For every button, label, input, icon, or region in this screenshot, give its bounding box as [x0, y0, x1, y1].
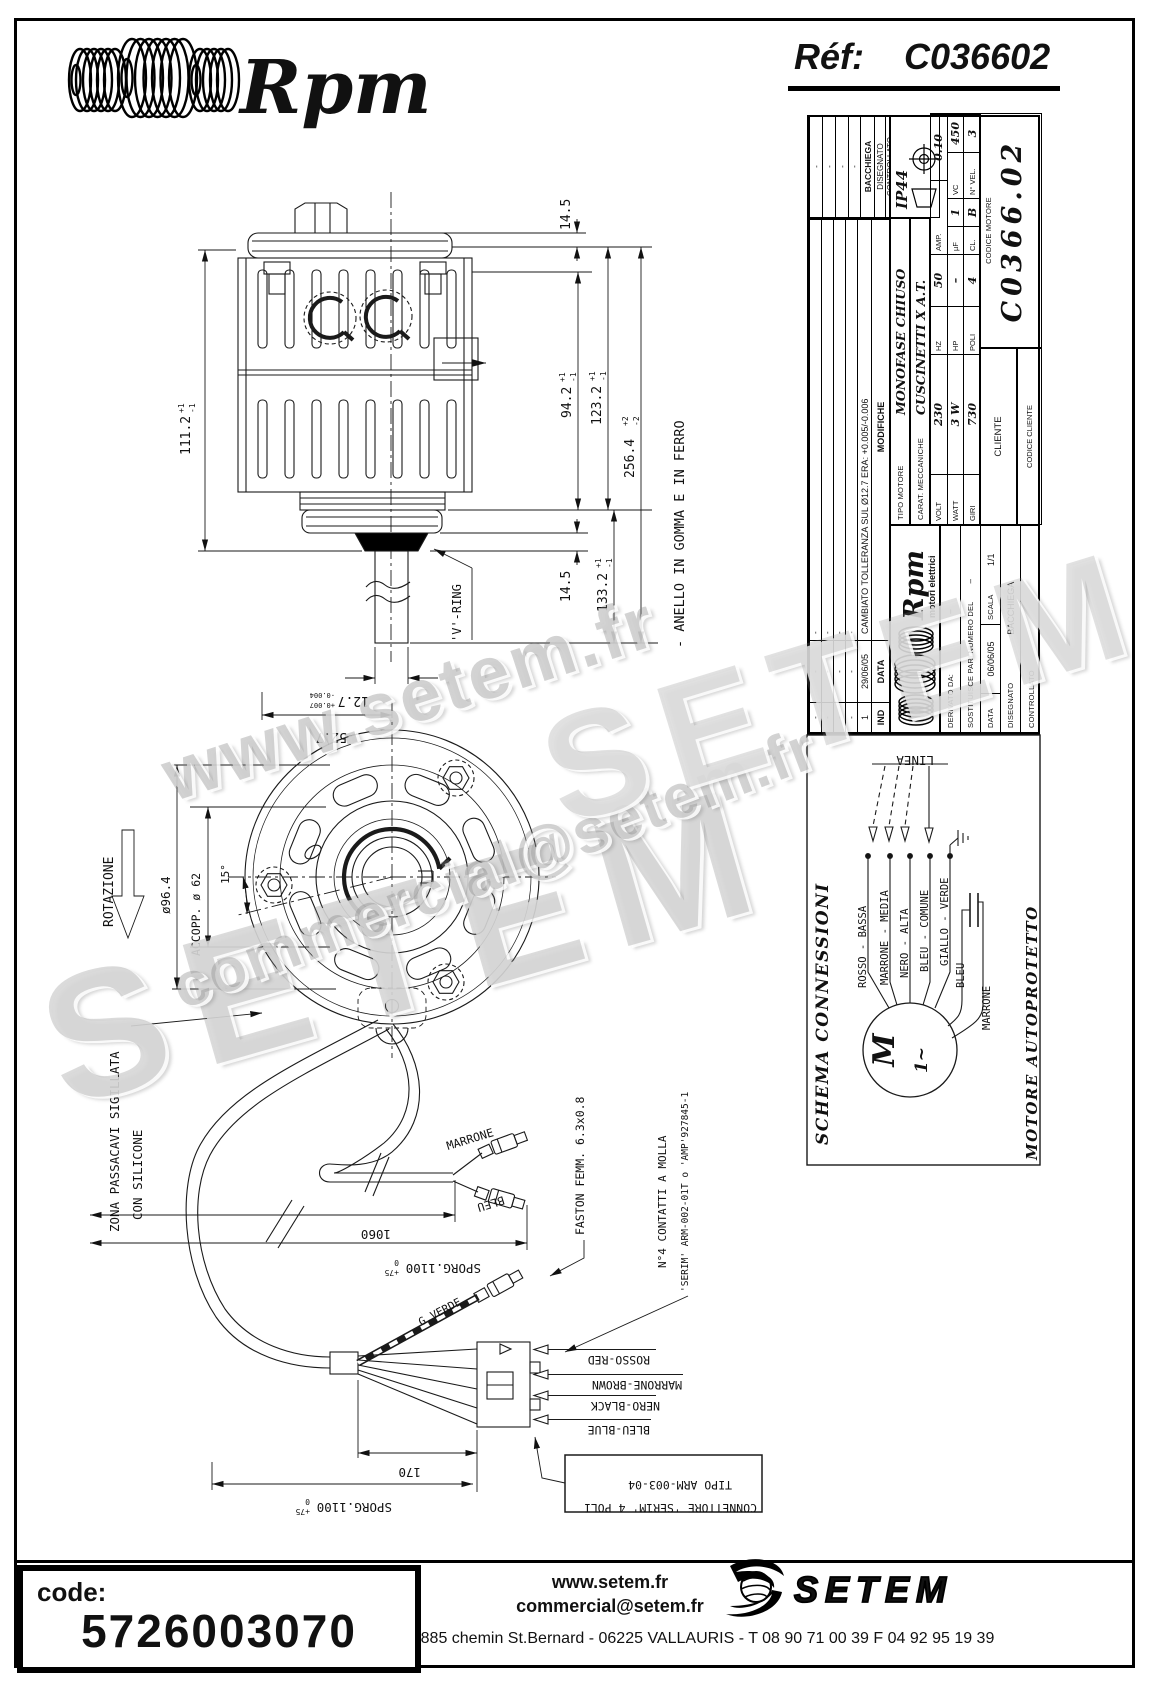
schema-title: SCHEMA CONNESSIONI	[813, 882, 833, 1145]
dim-256-sub: -2	[632, 416, 641, 426]
schema-wire-giallo: GIALLO - VERDE	[939, 877, 951, 966]
dim-52-label: 52.7	[316, 729, 347, 744]
dim-14-top-label: 14.5	[559, 199, 574, 230]
contatti-note-1: N°4 CONTATTI A MOLLA	[656, 1135, 669, 1268]
footer-address: 885 chemin St.Bernard - 06225 VALLAURIS …	[420, 1630, 995, 1648]
contatti-note-2: 'SERIM' ARM-002-01T o 'AMP'927845-1	[680, 1092, 691, 1292]
dim-94-label: 94.2	[560, 387, 575, 418]
schema-wire-nero: NERO - ALTA	[899, 908, 911, 978]
harness-labels: ZONA PASSACAVI SIGILLATA CON SILICONE MA…	[107, 1051, 757, 1516]
zona-line2: CON SILICONE	[130, 1130, 145, 1220]
dim-123-sub: -1	[599, 371, 608, 381]
label-marrone-brown: MARRONE-BROWN	[592, 1378, 682, 1392]
schema-wire-rosso: ROSSO - BASSA	[857, 905, 869, 988]
rotazione-label: ROTAZIONE	[102, 857, 117, 927]
dim-94-sub: -1	[569, 372, 578, 382]
harness-dimensions	[90, 1180, 527, 1492]
setem-logo-text: SETEM	[794, 1569, 953, 1610]
dim-133-sup: +1	[594, 558, 603, 568]
schema-cap-bleu: BLEU	[955, 963, 967, 988]
dim-12-label: 12.7	[338, 693, 369, 708]
anello-note: - ANELLO IN GOMMA E IN FERRO	[672, 420, 688, 648]
schema-cap-marrone: MARRONE	[981, 986, 993, 1030]
drawing-sheet: 111.2+1-1 14.5 94.2+1-1 123.2+1-1 256.4+…	[0, 0, 1154, 1683]
faston-note: FASTON FEMM. 6.3x0.8	[573, 1096, 587, 1235]
dim-111-label: 111.2	[179, 416, 194, 455]
label-bleu-blue: BLEU-BLUE	[588, 1423, 650, 1437]
side-view-dim-labels: 111.2+1-1 14.5 94.2+1-1 123.2+1-1 256.4+…	[177, 199, 688, 744]
code-box: code: 5726003070	[17, 1565, 421, 1673]
schema-labels: SCHEMA CONNESSIONI MOTORE AUTOPROTETTO L…	[813, 753, 1041, 1161]
angle-15-label: 15°	[219, 864, 232, 884]
accopp-label: ACCOPP. ø 62	[189, 873, 203, 956]
wire-bleu-label: BLEU	[476, 1193, 507, 1215]
setem-swoosh-icon	[726, 1559, 784, 1617]
dim-94-sup: +1	[558, 372, 567, 382]
dim-sporg-bottom: SPORG.1100	[317, 1500, 392, 1515]
sporg-bot-sup: +75	[295, 1507, 310, 1516]
dim-111-sub: -1	[188, 403, 197, 413]
motor-front-view	[228, 702, 556, 1058]
sporg-top-sub: 0	[394, 1258, 399, 1267]
schema-wire-bleu: BLEU - COMUNE	[919, 890, 931, 972]
dim-sporg-top: SPORG.1100	[406, 1261, 481, 1276]
dim-133-label: 133.2	[596, 573, 611, 612]
dim-14-bot-label: 14.5	[559, 571, 574, 602]
dim-96-label: ø96.4	[158, 876, 173, 914]
front-view-labels: ø96.4 ACCOPP. ø 62 15° ROTAZIONE	[102, 857, 232, 956]
sporg-top-sup: +75	[384, 1268, 399, 1277]
dim-133-sub: -1	[605, 558, 614, 568]
label-nero-black: NERO-BLACK	[591, 1399, 660, 1413]
dim-1060-label: 1060	[361, 1227, 391, 1242]
dim-123-label: 123.2	[590, 386, 605, 425]
code-value: 5726003070	[23, 1604, 415, 1658]
vring-label: 'V'-RING	[450, 584, 464, 642]
setem-logo: SETEM	[718, 1556, 953, 1627]
motor-symbol-phase: 1~	[912, 1047, 932, 1073]
label-rosso-red: ROSSO-RED	[588, 1353, 650, 1367]
dim-12-sub: -0.004	[310, 691, 335, 699]
schema-bottom-note: MOTORE AUTOPROTETTO	[1023, 905, 1041, 1161]
sporg-bot-sub: 0	[305, 1497, 310, 1506]
zona-line1: ZONA PASSACAVI SIGILLATA	[107, 1051, 122, 1232]
dim-256-sup: +2	[621, 416, 630, 426]
connector-box-line1: TIPO ARM-003-04	[628, 1478, 732, 1492]
dim-123-sup: +1	[588, 371, 597, 381]
motor-side-view	[238, 192, 486, 662]
dim-12-sup: +0.007	[310, 701, 335, 709]
dim-256-label: 256.4	[623, 439, 638, 478]
connector-box-line2: CONNETTORE 'SER1M' 4 POLI	[584, 1501, 757, 1515]
linea-label: LINEA	[896, 753, 934, 768]
dim-170-label: 170	[398, 1465, 421, 1480]
technical-drawing: 111.2+1-1 14.5 94.2+1-1 123.2+1-1 256.4+…	[0, 0, 1154, 1683]
schema-wire-marrone: MARRONE - MEDIA	[879, 889, 891, 985]
dim-111-sup: +1	[177, 403, 186, 413]
wire-marrone-label: MARRONE	[445, 1125, 496, 1153]
motor-symbol-m: M	[867, 1033, 902, 1068]
